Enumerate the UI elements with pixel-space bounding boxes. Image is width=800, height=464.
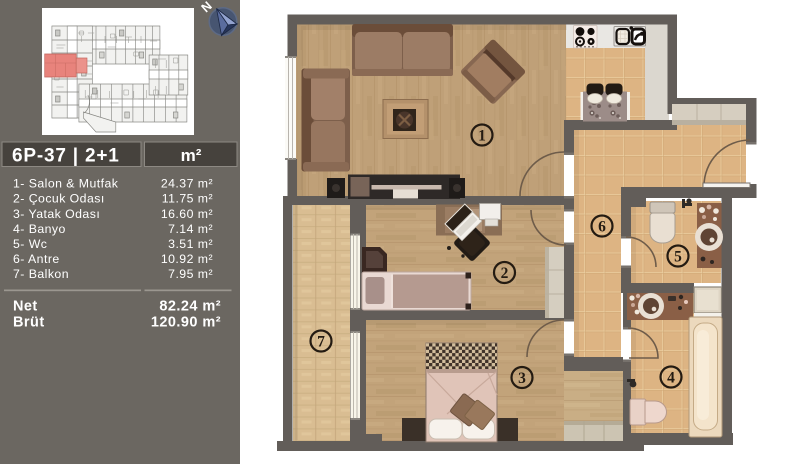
svg-text:m²: m² — [181, 146, 202, 165]
svg-text:1: 1 — [478, 128, 486, 145]
svg-text:Net: Net — [13, 299, 38, 315]
svg-text:3.51 m²: 3.51 m² — [168, 237, 213, 251]
svg-text:10.92 m²: 10.92 m² — [161, 252, 213, 266]
svg-text:4: 4 — [667, 370, 675, 387]
svg-text:3- Yatak Odası: 3- Yatak Odası — [13, 207, 100, 221]
svg-text:5- Wc: 5- Wc — [13, 237, 47, 251]
svg-text:7.14 m²: 7.14 m² — [168, 222, 213, 236]
svg-text:82.24 m²: 82.24 m² — [159, 299, 221, 315]
svg-text:6- Antre: 6- Antre — [13, 252, 60, 266]
svg-text:2- Çocuk Odası: 2- Çocuk Odası — [13, 192, 105, 206]
svg-text:7: 7 — [317, 334, 325, 351]
svg-text:16.60 m²: 16.60 m² — [161, 207, 213, 221]
svg-text:120.90 m²: 120.90 m² — [151, 315, 221, 331]
svg-text:7- Balkon: 7- Balkon — [13, 267, 69, 281]
svg-text:5: 5 — [674, 249, 682, 266]
svg-text:4- Banyo: 4- Banyo — [13, 222, 66, 236]
svg-text:24.37 m²: 24.37 m² — [161, 177, 213, 191]
svg-text:7.95 m²: 7.95 m² — [168, 267, 213, 281]
svg-text:6: 6 — [598, 219, 606, 236]
svg-text:3: 3 — [518, 370, 526, 387]
svg-text:Brüt: Brüt — [13, 315, 45, 331]
svg-text:6P-37 | 2+1: 6P-37 | 2+1 — [12, 146, 120, 167]
svg-text:1- Salon & Mutfak: 1- Salon & Mutfak — [13, 177, 119, 191]
svg-text:11.75 m²: 11.75 m² — [162, 192, 213, 206]
svg-text:2: 2 — [501, 265, 509, 282]
